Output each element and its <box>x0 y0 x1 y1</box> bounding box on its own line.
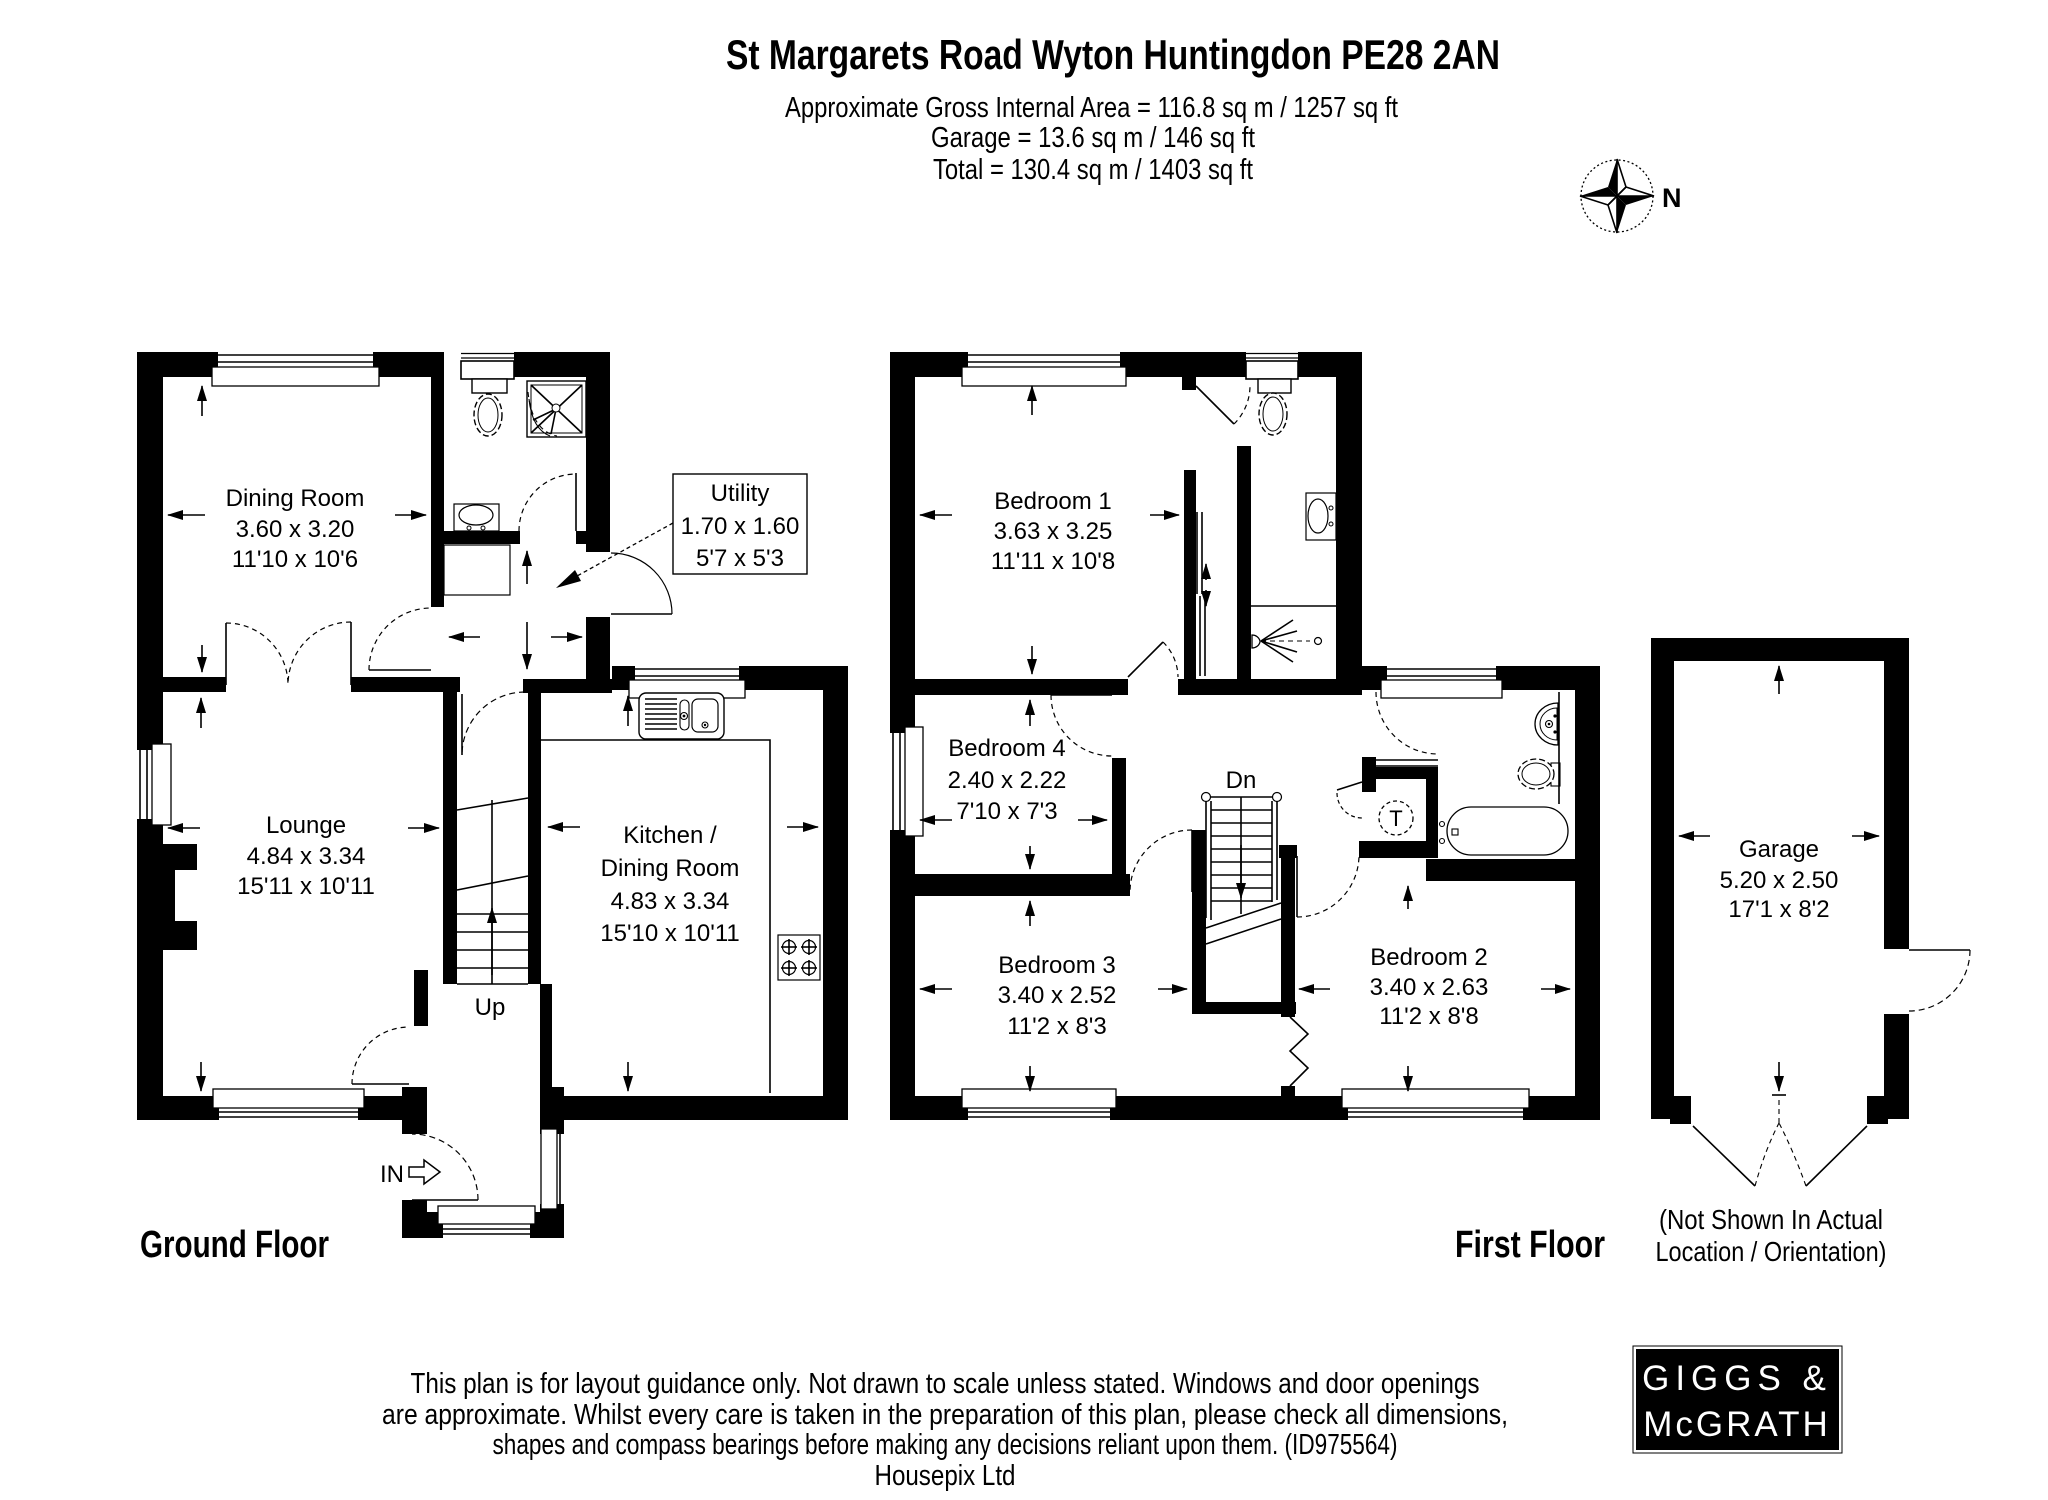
svg-text:Utility: Utility <box>711 480 770 507</box>
svg-text:are approximate. Whilst every: are approximate. Whilst every care is ta… <box>382 1399 1508 1431</box>
svg-text:Housepix Ltd: Housepix Ltd <box>875 1460 1016 1492</box>
svg-text:3.63 x 3.25: 3.63 x 3.25 <box>994 518 1113 545</box>
svg-text:17'1 x 8'2: 17'1 x 8'2 <box>1728 896 1829 923</box>
svg-text:15'10 x 10'11: 15'10 x 10'11 <box>600 920 740 947</box>
svg-text:Up: Up <box>475 994 506 1021</box>
svg-text:Dining Room: Dining Room <box>601 855 740 882</box>
svg-text:Garage = 13.6 sq m / 146 sq ft: Garage = 13.6 sq m / 146 sq ft <box>931 122 1255 154</box>
svg-text:3.40 x 2.63: 3.40 x 2.63 <box>1370 974 1489 1001</box>
svg-text:Dining Room: Dining Room <box>226 485 365 512</box>
svg-text:Location / Orientation): Location / Orientation) <box>1656 1236 1887 1267</box>
svg-text:Bedroom 1: Bedroom 1 <box>994 488 1111 515</box>
svg-text:N: N <box>1662 183 1682 213</box>
svg-text:4.84 x 3.34: 4.84 x 3.34 <box>247 843 366 870</box>
svg-text:St Margarets Road Wyton Huntin: St Margarets Road Wyton Huntingdon PE28 … <box>726 31 1500 78</box>
svg-text:T: T <box>1389 806 1402 831</box>
svg-text:Bedroom 2: Bedroom 2 <box>1370 944 1487 971</box>
svg-text:7'10 x 7'3: 7'10 x 7'3 <box>956 798 1057 825</box>
svg-text:(Not Shown In Actual: (Not Shown In Actual <box>1659 1204 1883 1235</box>
svg-text:Kitchen /: Kitchen / <box>623 822 717 849</box>
svg-text:1.70 x 1.60: 1.70 x 1.60 <box>681 513 800 540</box>
svg-text:First Floor: First Floor <box>1455 1224 1605 1266</box>
svg-text:Bedroom 4: Bedroom 4 <box>948 735 1065 762</box>
svg-text:11'10 x 10'6: 11'10 x 10'6 <box>232 546 358 573</box>
svg-text:Garage: Garage <box>1739 836 1819 863</box>
svg-text:Approximate Gross Internal Are: Approximate Gross Internal Area = 116.8 … <box>785 92 1398 124</box>
svg-text:4.83 x 3.34: 4.83 x 3.34 <box>611 888 730 915</box>
svg-text:15'11 x 10'11: 15'11 x 10'11 <box>237 873 375 900</box>
svg-text:McGRATH: McGRATH <box>1643 1405 1831 1444</box>
svg-text:Total = 130.4 sq m / 1403 sq f: Total = 130.4 sq m / 1403 sq ft <box>933 154 1253 186</box>
svg-text:5'7 x 5'3: 5'7 x 5'3 <box>696 545 784 572</box>
svg-text:GIGGS &: GIGGS & <box>1642 1359 1832 1398</box>
svg-text:2.40 x 2.22: 2.40 x 2.22 <box>948 767 1067 794</box>
svg-text:This plan is for layout guidan: This plan is for layout guidance only. N… <box>411 1368 1480 1400</box>
svg-text:Ground Floor: Ground Floor <box>140 1224 329 1266</box>
svg-text:3.60 x 3.20: 3.60 x 3.20 <box>236 516 355 543</box>
svg-text:Lounge: Lounge <box>266 812 346 839</box>
svg-text:Bedroom 3: Bedroom 3 <box>998 952 1115 979</box>
svg-text:11'2 x 8'3: 11'2 x 8'3 <box>1007 1013 1106 1040</box>
svg-text:11'2 x 8'8: 11'2 x 8'8 <box>1379 1003 1478 1030</box>
svg-text:Dn: Dn <box>1226 767 1257 794</box>
svg-text:3.40 x 2.52: 3.40 x 2.52 <box>998 982 1117 1009</box>
svg-text:5.20 x 2.50: 5.20 x 2.50 <box>1720 867 1839 894</box>
svg-text:IN: IN <box>380 1161 404 1188</box>
svg-text:shapes and compass bearings be: shapes and compass bearings before makin… <box>493 1429 1398 1461</box>
svg-text:11'11 x 10'8: 11'11 x 10'8 <box>991 548 1115 575</box>
